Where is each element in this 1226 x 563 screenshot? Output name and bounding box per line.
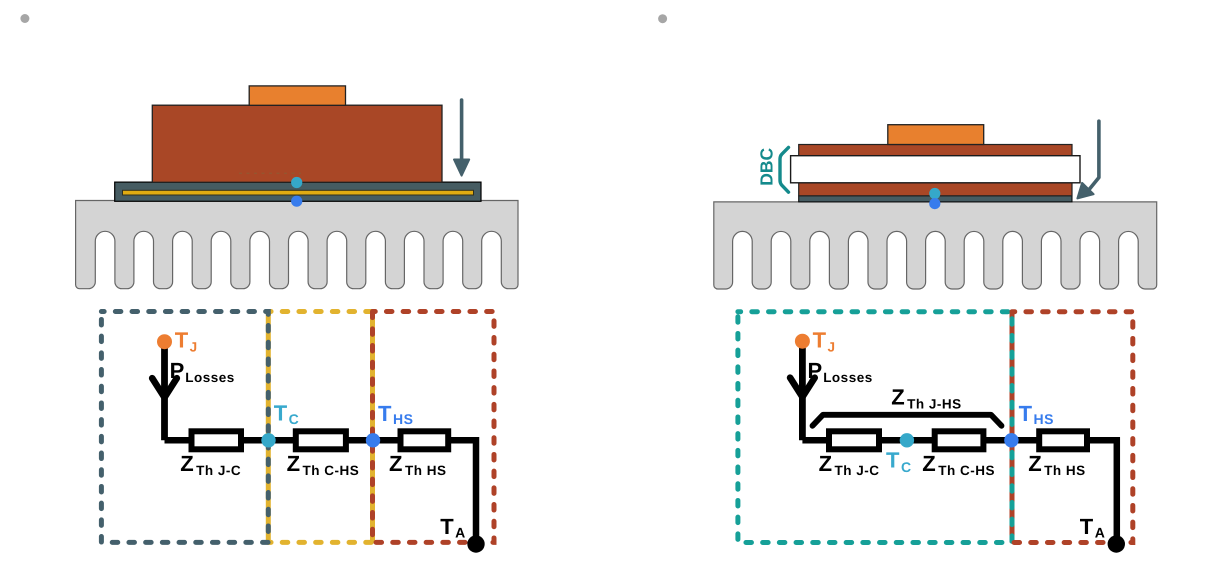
svg-text:DBC: DBC xyxy=(757,147,777,185)
